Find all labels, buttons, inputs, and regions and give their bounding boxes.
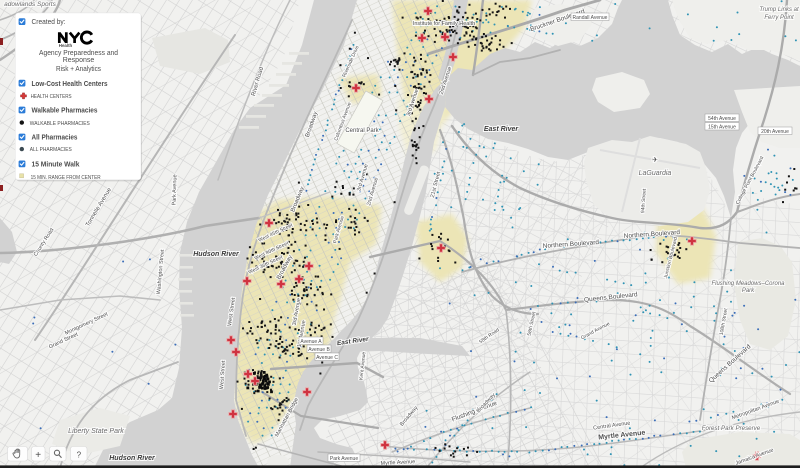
svg-text:+: + (35, 450, 41, 461)
svg-text:15th Avenue: 15th Avenue (708, 125, 736, 131)
svg-text:All Pharmacies: All Pharmacies (32, 133, 78, 142)
svg-text:✈: ✈ (652, 157, 658, 164)
svg-text:Walkable Pharmacies: Walkable Pharmacies (32, 106, 98, 115)
svg-text:54th Avenue: 54th Avenue (708, 116, 736, 122)
svg-text:Hudson River: Hudson River (193, 251, 240, 258)
svg-text:LaGuardia: LaGuardia (639, 170, 672, 177)
svg-text:HEALTH CENTERS: HEALTH CENTERS (31, 94, 72, 100)
svg-text:15 MIN. RANGE FROM CENTER: 15 MIN. RANGE FROM CENTER (31, 175, 101, 181)
svg-text:Central Park: Central Park (345, 128, 379, 134)
svg-text:East River: East River (484, 126, 520, 133)
svg-text:adowlands Sports: adowlands Sports (4, 1, 56, 8)
svg-text:Liberty State Park: Liberty State Park (68, 428, 124, 435)
svg-text:15 Minute Walk: 15 Minute Walk (32, 160, 80, 169)
svg-text:Park Avenue: Park Avenue (171, 174, 178, 205)
svg-text:Ferry Point: Ferry Point (764, 15, 794, 21)
svg-text:Park Avenue: Park Avenue (330, 456, 358, 462)
svg-text:20th Avenue: 20th Avenue (761, 129, 789, 135)
svg-text:Health: Health (59, 43, 73, 48)
svg-text:Risk + Analytics: Risk + Analytics (56, 66, 101, 73)
svg-text:Avenue C: Avenue C (316, 355, 338, 361)
svg-text:Institute for Family Health: Institute for Family Health (413, 21, 475, 27)
svg-text:Forest Park Preserve: Forest Park Preserve (702, 425, 761, 432)
svg-text:Response: Response (63, 57, 95, 64)
svg-text:Low-Cost Health Centers: Low-Cost Health Centers (32, 79, 108, 88)
svg-text:Avenue A: Avenue A (300, 339, 322, 345)
svg-text:Created by:: Created by: (32, 17, 66, 26)
svg-text:Flushing Meadows–Corona: Flushing Meadows–Corona (711, 281, 785, 287)
svg-text:ALL PHARMACIES: ALL PHARMACIES (30, 147, 72, 153)
svg-text:Park: Park (742, 288, 755, 294)
svg-text:Avenue B: Avenue B (308, 347, 330, 353)
svg-text:Hudson River: Hudson River (109, 455, 156, 462)
svg-text:Agency Preparedness and: Agency Preparedness and (39, 50, 118, 57)
svg-text:?: ? (77, 450, 82, 459)
svg-text:WALKABLE PHARMACIES: WALKABLE PHARMACIES (30, 121, 90, 127)
svg-text:Trump Links at: Trump Links at (759, 7, 799, 13)
svg-text:Randall Avenue: Randall Avenue (573, 15, 608, 21)
